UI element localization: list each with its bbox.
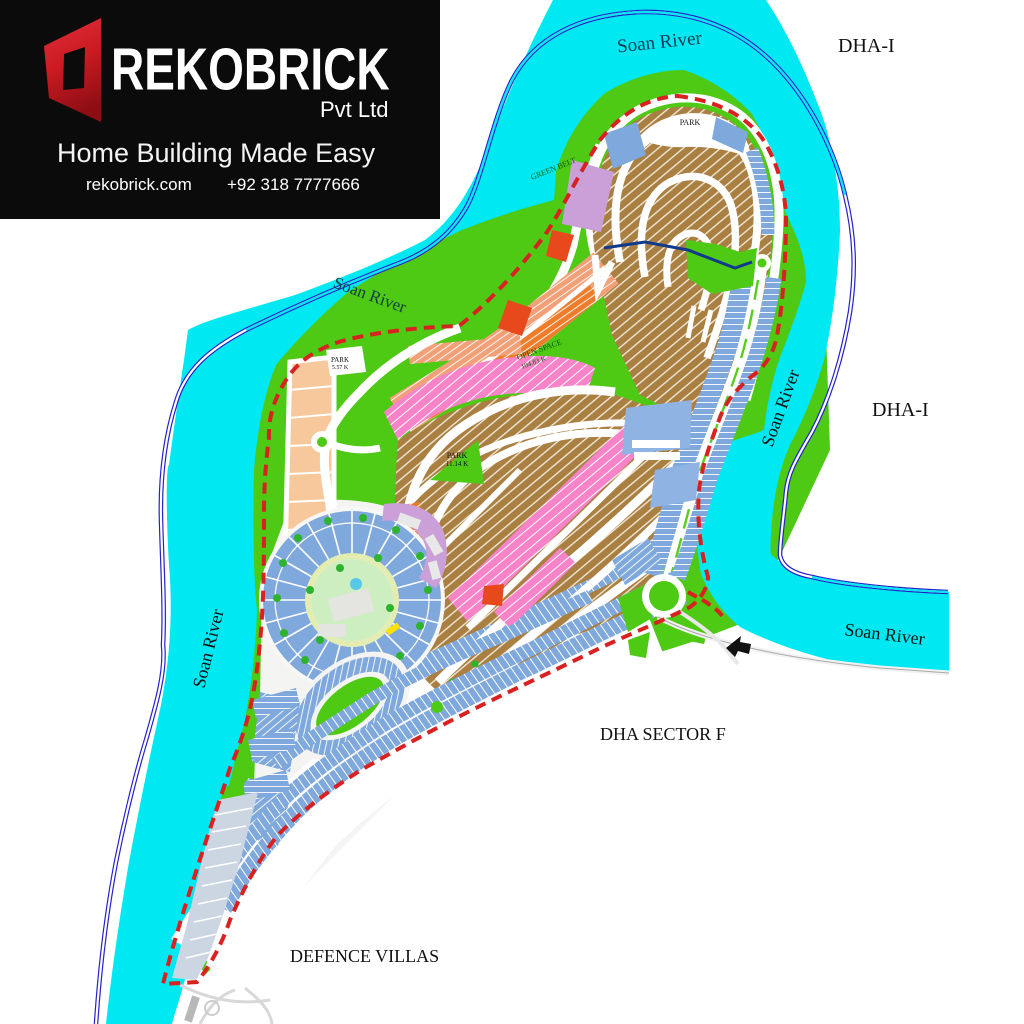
svg-text:5.57 K: 5.57 K: [332, 365, 349, 371]
svg-text:DEFENCE VILLAS: DEFENCE VILLAS: [290, 946, 439, 966]
svg-text:DHA-I: DHA-I: [838, 35, 895, 57]
svg-text:PARK: PARK: [447, 451, 468, 460]
svg-text:PARK: PARK: [680, 118, 701, 127]
svg-text:11.14 K: 11.14 K: [446, 460, 468, 468]
svg-text:PARK: PARK: [331, 356, 349, 364]
svg-text:DHA SECTOR F: DHA SECTOR F: [600, 724, 726, 744]
svg-text:DHA-I: DHA-I: [872, 399, 929, 421]
